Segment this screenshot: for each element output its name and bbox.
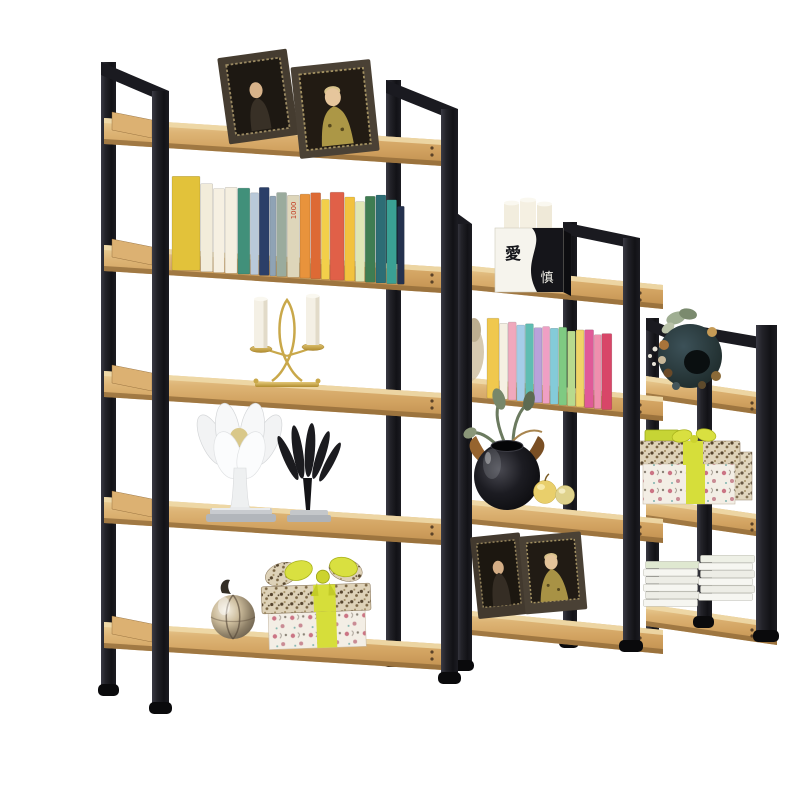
box-side	[563, 230, 571, 296]
book-spine	[397, 206, 404, 284]
bookshelf-product-image: 愛 慎	[0, 0, 800, 800]
pastel-book-row	[487, 318, 612, 409]
candle-trio	[504, 198, 552, 230]
book-spine	[225, 187, 237, 273]
gift-ribbon	[316, 611, 337, 648]
book-spine	[259, 187, 269, 275]
pole-front-left	[152, 91, 169, 710]
pole-front-right	[441, 109, 458, 680]
book-spine-label: 1000	[290, 201, 298, 219]
booklet-slab	[701, 555, 755, 562]
candle	[520, 200, 536, 230]
book-spine	[356, 202, 365, 282]
box-character-top: 愛	[505, 244, 521, 263]
apple-stem	[545, 474, 549, 481]
book-spine	[602, 334, 612, 410]
pole-foot	[149, 702, 172, 714]
book-spine	[277, 193, 287, 277]
photo-frames-middle	[470, 531, 587, 619]
bow-knot	[690, 435, 698, 443]
product-photo-stage: 愛 慎	[0, 0, 800, 800]
shelf-unit-right	[638, 307, 779, 651]
book-spine	[376, 195, 386, 283]
base-curl	[316, 379, 321, 384]
base-highlight	[212, 508, 270, 510]
wreath-ornament	[648, 307, 722, 390]
book-spine	[594, 335, 601, 409]
vase-highlight	[485, 452, 491, 464]
shelf-end-caps	[112, 112, 152, 642]
candle-shade	[264, 299, 268, 348]
booklet-slab	[699, 593, 753, 600]
base-step	[206, 514, 276, 522]
candle-top	[537, 202, 552, 207]
pole-rear-right	[386, 80, 401, 662]
booklet-slab	[646, 561, 700, 568]
candelabra	[250, 294, 324, 387]
colorful-book-row: 1000	[172, 176, 404, 284]
apple-highlight	[537, 484, 545, 490]
apple	[534, 481, 557, 504]
candle-top	[520, 198, 536, 203]
shelf-unit-middle: 愛 慎	[440, 198, 663, 671]
candelabra-base	[255, 382, 319, 387]
base-step	[287, 515, 331, 522]
apple-highlight	[559, 488, 566, 493]
book-spine	[487, 318, 499, 398]
vase-rim	[491, 441, 523, 452]
ball-topper	[221, 580, 231, 594]
pole-foot	[753, 630, 779, 642]
photo-frame	[217, 49, 298, 145]
book-spine	[345, 197, 355, 281]
book-spine	[251, 193, 259, 275]
photo-frame	[470, 532, 528, 619]
pole-foot	[619, 640, 643, 652]
gift-boxes-right	[638, 427, 752, 504]
pole-front-right	[623, 238, 640, 648]
book-spine	[517, 325, 525, 401]
bow-knot	[316, 570, 329, 583]
booklet-slab	[701, 571, 755, 578]
sculpture-black	[274, 423, 344, 522]
booklet-slab	[699, 578, 753, 585]
ball-body	[211, 595, 255, 639]
gift-box-left	[260, 553, 372, 649]
booklet-slab	[646, 577, 700, 584]
book-spine	[213, 189, 224, 273]
book-spine	[534, 328, 542, 403]
gift-ribbon	[683, 441, 703, 465]
pole-foot	[693, 616, 714, 628]
book-spine	[201, 184, 213, 272]
book-spine	[576, 330, 584, 407]
pole-foot	[98, 684, 119, 696]
book-spine	[585, 330, 594, 408]
vase-black	[461, 387, 544, 510]
booklet-slab	[701, 586, 755, 593]
photo-frame	[519, 531, 588, 614]
booklet-slab	[644, 584, 698, 591]
stem	[303, 478, 312, 510]
book-spine	[321, 199, 329, 279]
wreath-hole	[684, 350, 710, 374]
book-spine	[567, 331, 575, 406]
photo-frame	[291, 59, 380, 159]
book-spine	[559, 327, 567, 405]
candle-top	[254, 297, 267, 301]
booklet-slab	[646, 592, 700, 599]
book-spine	[238, 188, 250, 274]
booklet-stacks	[644, 555, 755, 606]
book-spine	[300, 194, 310, 278]
book-spine	[172, 176, 200, 270]
book-spine	[365, 196, 375, 282]
booklet-slab	[644, 569, 698, 576]
apple	[556, 486, 575, 505]
book-spine	[550, 328, 558, 404]
candle-shade	[316, 296, 320, 345]
book-spine	[543, 327, 550, 404]
gift-ribbon	[686, 464, 705, 504]
ball-highlight	[218, 597, 230, 615]
ornament-ball	[211, 580, 255, 639]
pole-right	[756, 325, 777, 636]
yinyang-box: 愛 慎	[495, 228, 571, 296]
shelf-unit-left: 1000	[98, 49, 461, 714]
book-spine	[311, 193, 321, 279]
box-character-bottom: 慎	[540, 271, 553, 286]
book-spine	[508, 322, 516, 400]
book-spine	[270, 196, 276, 276]
booklet-slab	[644, 599, 698, 606]
booklet-slab	[699, 563, 753, 570]
candle-top	[306, 294, 319, 298]
book-spine	[387, 200, 397, 284]
vase-body	[474, 442, 540, 510]
photo-frames-left	[217, 49, 379, 159]
candle	[537, 204, 552, 230]
pole-foot	[438, 672, 461, 684]
book-spine	[500, 323, 508, 399]
base-curl	[254, 379, 259, 384]
book-spine	[330, 192, 344, 280]
book-spine	[525, 324, 533, 402]
candle	[504, 203, 519, 230]
candle-top	[504, 201, 519, 206]
vase-highlight	[483, 449, 501, 479]
